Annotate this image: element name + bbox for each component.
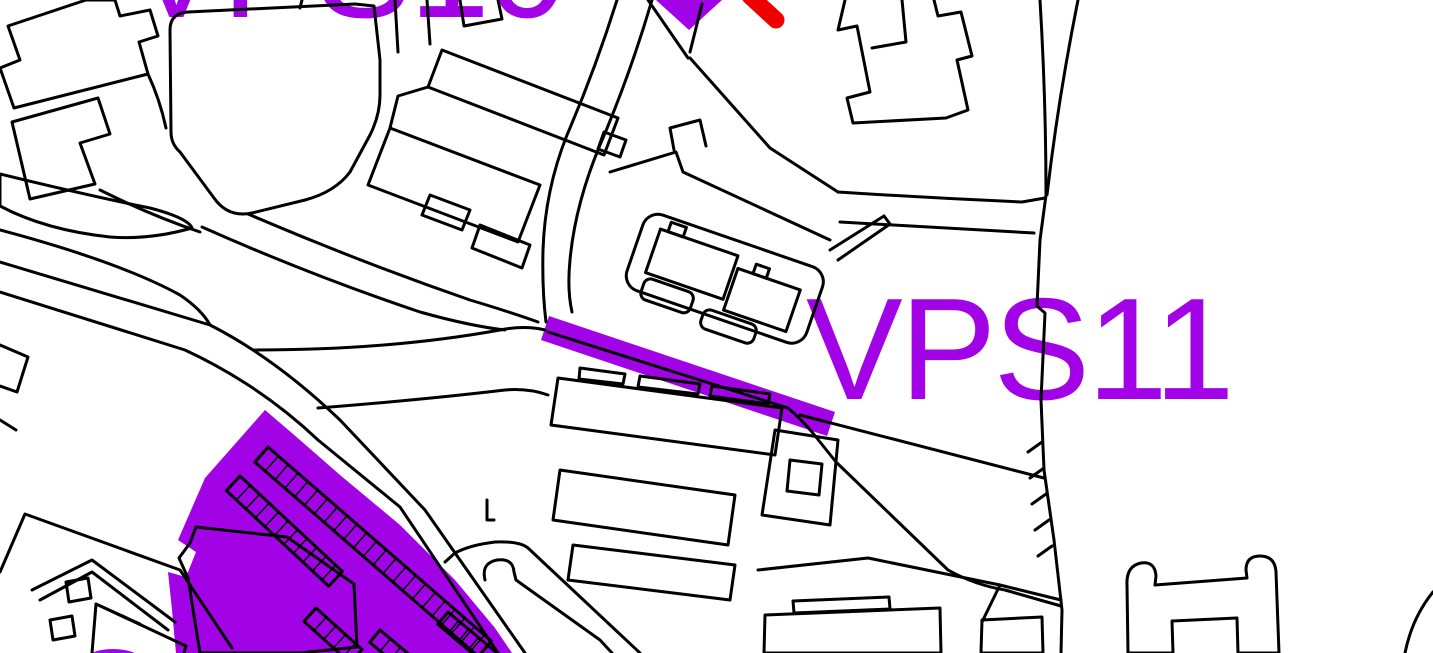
map-canvas: VPS10 VPS11 (0, 0, 1433, 653)
planning-map: VPS10 VPS11 (0, 0, 1433, 653)
main-site-label: VPS11 (806, 268, 1232, 430)
